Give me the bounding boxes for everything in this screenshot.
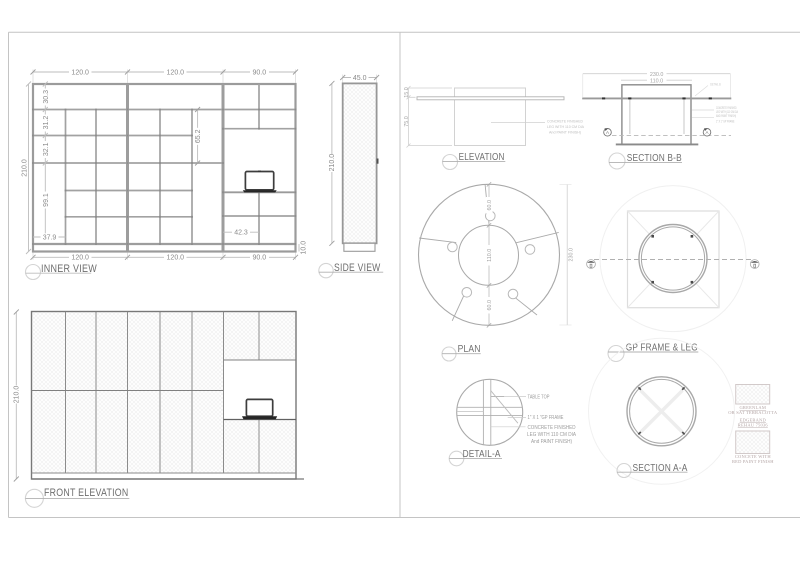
svg-text:75.0: 75.0	[404, 116, 410, 127]
svg-text:230.0: 230.0	[568, 248, 574, 261]
svg-text:SECTION B-B: SECTION B-B	[627, 153, 682, 164]
svg-text:42.3: 42.3	[234, 230, 248, 237]
svg-text:60.0: 60.0	[487, 200, 493, 211]
svg-text:120.0: 120.0	[71, 255, 89, 262]
svg-text:120.0: 120.0	[167, 69, 185, 76]
svg-text:37.9: 37.9	[43, 234, 57, 241]
svg-text:31.2: 31.2	[43, 116, 50, 130]
svg-text:LEG WITH 110 CM DIA: LEG WITH 110 CM DIA	[527, 432, 577, 438]
svg-text:10.0: 10.0	[301, 241, 308, 255]
svg-text:REHAU 75036: REHAU 75036	[738, 422, 769, 427]
svg-text:32.1: 32.1	[43, 142, 50, 156]
svg-text:1" X 1" GP FRAME: 1" X 1" GP FRAME	[716, 120, 735, 124]
svg-text:A: A	[705, 130, 708, 135]
svg-text:LEG WITH 110 CM DIA: LEG WITH 110 CM DIA	[547, 125, 585, 129]
svg-text:SECTION A-A: SECTION A-A	[633, 463, 688, 474]
svg-text:110.0: 110.0	[650, 78, 663, 84]
svg-text:120.0: 120.0	[71, 69, 89, 76]
svg-text:230.0: 230.0	[650, 72, 664, 78]
svg-text:A: A	[606, 130, 609, 135]
svg-text:DETAIL-A: DETAIL-A	[463, 448, 501, 460]
svg-text:GP FRAME & LEG: GP FRAME & LEG	[626, 342, 698, 353]
svg-text:OR SAT TERRACOTTA: OR SAT TERRACOTTA	[728, 410, 778, 415]
svg-text:TABLE TOP: TABLE TOP	[528, 394, 551, 400]
svg-text:SIDE VIEW: SIDE VIEW	[334, 262, 381, 274]
svg-text:99.1: 99.1	[43, 193, 50, 207]
svg-text:65.2: 65.2	[195, 129, 202, 143]
svg-text:110.0: 110.0	[487, 249, 493, 262]
svg-text:1" X 1 "GP FRAME: 1" X 1 "GP FRAME	[528, 415, 565, 421]
svg-text:RED PAINT FINISH: RED PAINT FINISH	[732, 459, 774, 464]
svg-text:AND PAINT FINISH): AND PAINT FINISH)	[716, 114, 736, 118]
svg-text:DETAIL B: DETAIL B	[710, 82, 721, 86]
svg-text:30.3: 30.3	[43, 90, 50, 104]
svg-text:INNER VIEW: INNER VIEW	[41, 263, 97, 275]
svg-text:CONCRETE FINISHED: CONCRETE FINISHED	[547, 119, 583, 123]
svg-text:210.0: 210.0	[22, 159, 29, 177]
svg-text:90.0: 90.0	[252, 255, 266, 262]
svg-text:45.0: 45.0	[353, 75, 367, 82]
svg-text:90.0: 90.0	[252, 69, 266, 76]
svg-text:210.0: 210.0	[14, 386, 21, 404]
svg-text:CONCRETE FINISHED: CONCRETE FINISHED	[528, 425, 576, 431]
svg-text:PLAN: PLAN	[458, 344, 481, 355]
svg-text:15.0: 15.0	[404, 87, 410, 98]
svg-text:FRONT ELEVATION: FRONT ELEVATION	[44, 487, 129, 499]
svg-text:60.0: 60.0	[487, 300, 493, 311]
svg-text:210.0: 210.0	[329, 154, 336, 172]
svg-text:120.0: 120.0	[167, 255, 185, 262]
svg-text:ELEVATION: ELEVATION	[459, 152, 505, 163]
svg-text:And PAINT FINISH): And PAINT FINISH)	[549, 130, 581, 134]
svg-text:And PAINT FINISH): And PAINT FINISH)	[531, 439, 572, 445]
